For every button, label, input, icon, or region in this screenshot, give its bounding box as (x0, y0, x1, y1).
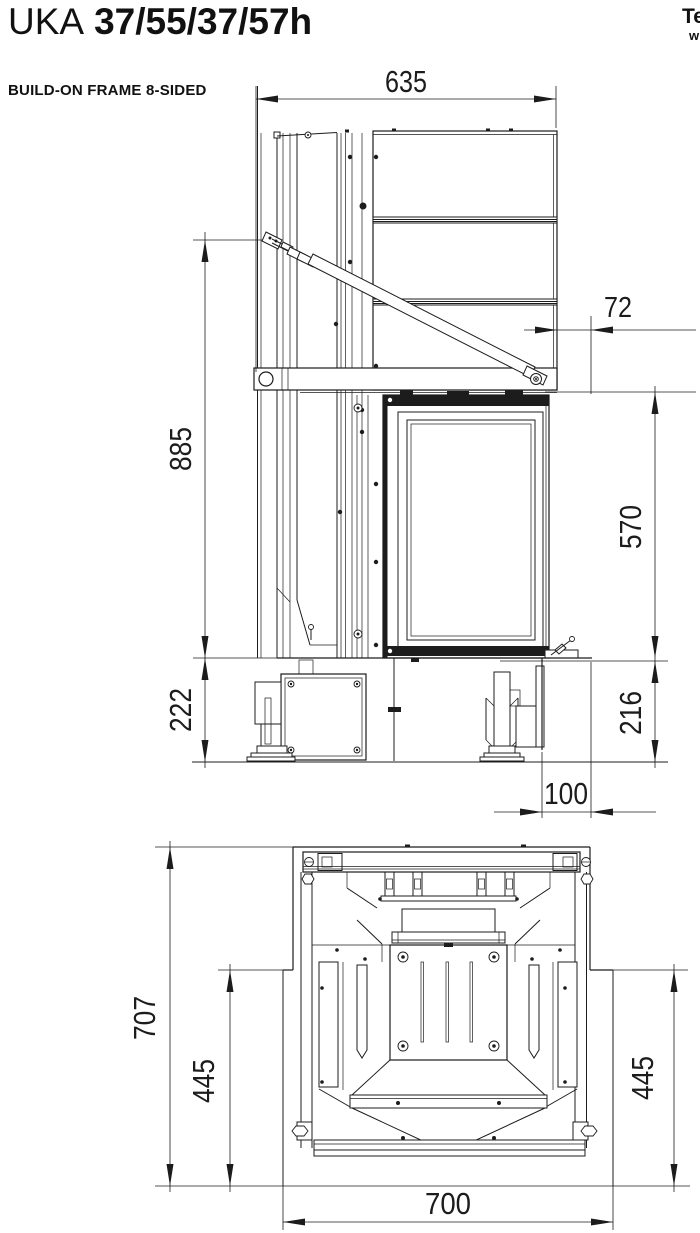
centre-plate (390, 943, 507, 1060)
bolt-icon (292, 1126, 308, 1136)
bolt-icon (581, 874, 593, 884)
dim-label-885: 885 (163, 427, 198, 471)
dim-label-222: 222 (163, 688, 198, 732)
side-panel (319, 962, 338, 1087)
side-view: 635 72 885 (163, 64, 696, 818)
bolt-icon (581, 1126, 597, 1136)
dimension-885: 885 (163, 232, 262, 768)
bolt-icon (302, 874, 314, 884)
dimension-445-right: 445 (590, 964, 688, 1192)
screw-dots (334, 155, 378, 647)
dim-label-100: 100 (544, 776, 588, 811)
mounting-bar (254, 368, 557, 393)
dimension-445-left: 445 (186, 964, 293, 1192)
dim-label-707: 707 (127, 996, 162, 1040)
fire-door (354, 395, 578, 658)
dim-label-216: 216 (613, 691, 648, 735)
dim-label-445-right: 445 (625, 1056, 660, 1100)
dim-label-72: 72 (604, 292, 632, 324)
dim-label-570: 570 (613, 505, 648, 549)
dimension-700: 700 (155, 1186, 690, 1230)
hood-box (373, 131, 557, 390)
side-panel (558, 962, 577, 1087)
technical-drawing-page: UKA37/55/37/57h BUILD-ON FRAME 8-SIDED T… (0, 0, 700, 1233)
front-band (314, 1140, 585, 1156)
dim-label-635: 635 (385, 64, 427, 99)
plan-view: 707 445 445 (127, 841, 690, 1230)
mounting-hole-icon (259, 372, 273, 386)
base-box (281, 674, 366, 760)
plan-structure (283, 845, 613, 1187)
plan-top-bar (302, 852, 593, 884)
door-latch (545, 637, 578, 659)
keyhole-icon (309, 625, 314, 630)
base-frame (247, 658, 544, 761)
dim-label-700: 700 (425, 1186, 471, 1221)
flue-collar (402, 909, 495, 932)
flue-posts (385, 872, 514, 899)
dimension-drawing: 635 72 885 (0, 0, 700, 1233)
dimension-707: 707 (127, 841, 295, 1192)
dim-label-445-left: 445 (186, 1059, 221, 1103)
hood-rail (373, 217, 557, 223)
